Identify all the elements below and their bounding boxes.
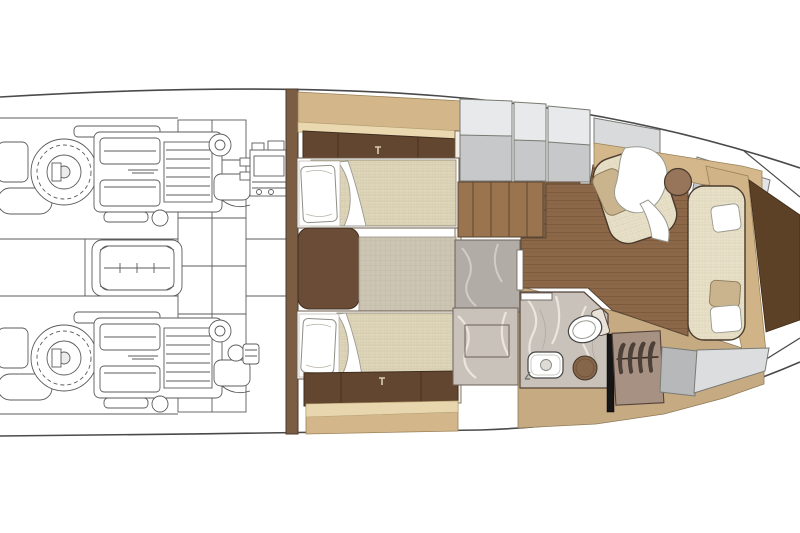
nightstand	[298, 228, 359, 309]
counter-unit-3	[548, 106, 590, 182]
engine-port	[0, 126, 250, 226]
sofa-pillow-white-bottom	[710, 305, 742, 334]
shower-door	[517, 250, 523, 290]
counter-unit-2	[514, 102, 546, 181]
bed-lower-pillow	[301, 318, 337, 374]
sofa	[688, 186, 745, 340]
wood-basin	[573, 356, 597, 380]
floorplan-drawing	[0, 0, 800, 533]
floorplan-canvas	[0, 0, 800, 533]
counter-unit-1	[460, 99, 512, 181]
engine-room	[0, 118, 288, 414]
guest-cabin	[297, 92, 462, 434]
washbasin	[525, 352, 563, 379]
sofa-pillow-tan	[709, 280, 741, 308]
washbasin-bowl	[541, 360, 552, 371]
cabin-rug	[359, 237, 456, 311]
round-stool	[665, 169, 692, 196]
cabin-bottom-cabinet	[304, 371, 458, 406]
aft-gray-unit-small	[660, 347, 697, 396]
engine-starboard	[0, 312, 250, 412]
generator	[92, 240, 182, 296]
sofa-pillow-white-top	[710, 203, 741, 233]
bulkhead-wall	[286, 89, 298, 434]
stairs	[458, 182, 543, 237]
hanging-wardrobe	[612, 331, 664, 405]
head-door	[521, 293, 552, 300]
